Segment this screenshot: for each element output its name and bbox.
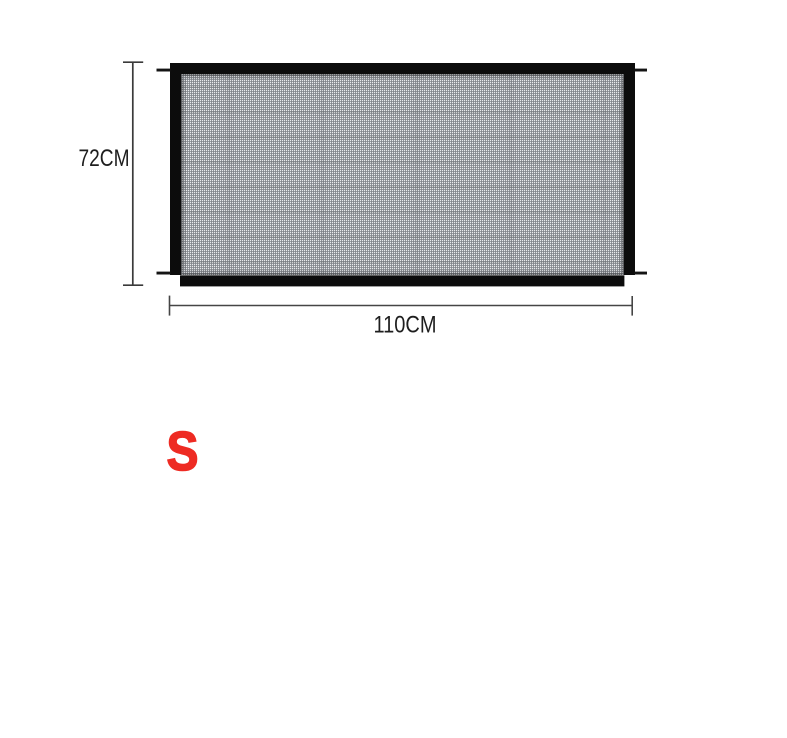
svg-text:S: S — [167, 421, 199, 482]
svg-text:72CM: 72CM — [79, 146, 130, 172]
svg-text:110CM: 110CM — [374, 313, 437, 339]
